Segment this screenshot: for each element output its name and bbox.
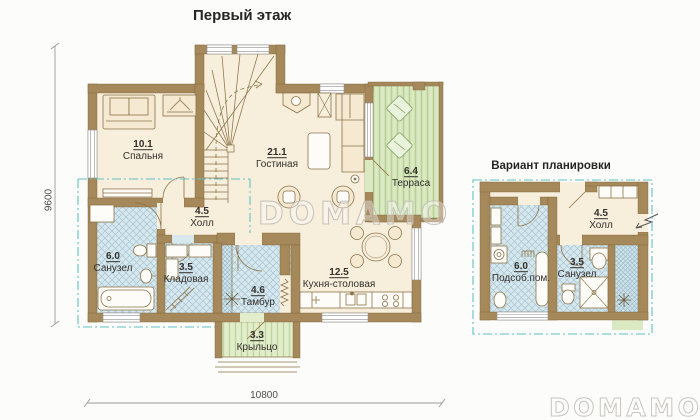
kitchen-counter bbox=[300, 292, 412, 308]
room-area: 4.5 bbox=[190, 206, 214, 218]
floor-plan-canvas: DOMAMO DOMAMO Первый этаж Вариант планир… bbox=[0, 0, 700, 420]
room-name: Холл bbox=[190, 218, 214, 230]
bathroom-window bbox=[103, 313, 140, 322]
watermark-bottom-right: DOMAMO bbox=[549, 393, 700, 420]
room-area: 3.3 bbox=[237, 330, 278, 342]
variant-room-label-hall: 4.5 Холл bbox=[589, 208, 613, 232]
screen bbox=[318, 93, 331, 117]
room-area: 6.4 bbox=[392, 166, 430, 178]
page-title: Первый этаж bbox=[193, 7, 291, 24]
variant-window bbox=[497, 312, 548, 320]
variant-plan-title: Вариант планировки bbox=[491, 160, 611, 172]
dimension-vertical: 9600 bbox=[44, 189, 55, 211]
dimension-horizontal: 10800 bbox=[250, 390, 278, 401]
variant-compass-star-icon bbox=[617, 293, 631, 307]
dresser bbox=[103, 189, 152, 197]
room-label-storage: 3.5 Кладовая bbox=[164, 262, 209, 286]
room-area: 12.5 bbox=[303, 267, 376, 279]
room-area: 6.0 bbox=[94, 251, 133, 263]
room-area: 4.5 bbox=[589, 208, 613, 220]
compass-star-icon bbox=[224, 291, 240, 307]
room-label-terrace: 6.4 Терраса bbox=[392, 166, 430, 190]
room-name: Гостиная bbox=[256, 159, 298, 171]
coffee-table bbox=[308, 133, 330, 169]
stair-window-2 bbox=[237, 45, 269, 54]
variant-entry-door bbox=[638, 214, 648, 232]
sofa-bed bbox=[103, 95, 155, 129]
porch-steps bbox=[215, 357, 300, 372]
terrace-window bbox=[365, 103, 373, 157]
basin-icon bbox=[494, 292, 506, 308]
kitchen-window bbox=[322, 313, 368, 322]
variant-cabinets bbox=[599, 186, 637, 198]
bedroom-window bbox=[88, 130, 97, 178]
closet-strip bbox=[222, 243, 232, 313]
floor-lamp bbox=[351, 175, 359, 183]
room-label-hall: 4.5 Холл bbox=[190, 206, 214, 230]
wardrobe bbox=[163, 95, 196, 116]
room-label-bathroom: 6.0 Санузел bbox=[94, 251, 133, 275]
room-name: Тамбур bbox=[241, 297, 275, 309]
variant-room-label-utility: 6.0 Подсоб.пом. bbox=[492, 261, 550, 285]
room-name: Санузел bbox=[558, 269, 597, 281]
room-area: 21.1 bbox=[256, 147, 298, 159]
room-label-vestibule: 4.6 Тамбур bbox=[241, 285, 275, 309]
shower-icon bbox=[580, 277, 608, 308]
bathtub-icon bbox=[98, 287, 154, 310]
variant-toilet-icon bbox=[562, 284, 575, 304]
room-area: 3.5 bbox=[164, 262, 209, 274]
dining-table bbox=[362, 233, 390, 261]
bath-cabinet bbox=[90, 205, 114, 222]
variant-room-label-bathroom: 3.5 Санузел bbox=[558, 257, 597, 281]
room-label-porch: 3.3 Крыльцо bbox=[237, 330, 278, 354]
room-name: Терраса bbox=[392, 178, 430, 190]
variant-porch-patch bbox=[612, 320, 643, 330]
room-name: Кухня-столовая bbox=[303, 279, 376, 291]
room-area: 4.6 bbox=[241, 285, 275, 297]
room-name: Крыльцо bbox=[237, 342, 278, 354]
room-name: Кладовая bbox=[164, 274, 209, 286]
room-label-living: 21.1 Гостиная bbox=[256, 147, 298, 171]
room-name: Санузел bbox=[94, 263, 133, 275]
room-label-bedroom: 10.1 Спальня bbox=[123, 139, 163, 163]
room-name: Спальня bbox=[123, 151, 163, 163]
room-area: 10.1 bbox=[123, 139, 163, 151]
room-name: Холл bbox=[589, 220, 613, 232]
room-label-kitchen: 12.5 Кухня-столовая bbox=[303, 267, 376, 291]
kitchen-side-window bbox=[412, 228, 421, 280]
watermark-center: DOMAMO bbox=[258, 196, 452, 232]
room-area: 6.0 bbox=[492, 261, 550, 273]
living-window bbox=[320, 84, 344, 93]
room-name: Подсоб.пом. bbox=[492, 273, 550, 285]
stair-window-1 bbox=[207, 45, 232, 54]
room-area: 3.5 bbox=[558, 257, 597, 269]
